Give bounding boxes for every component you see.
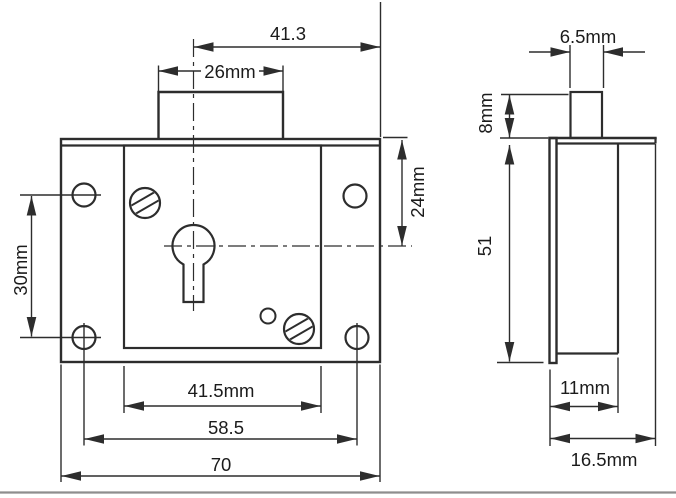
dim-label-tab-width: 26mm — [204, 61, 255, 82]
side-dimensions: 6.5mm 8mm 51 11mm 16.5mm — [474, 26, 656, 470]
front-dimensions: 41.3 26mm 24mm 30mm 41.5mm 58.5 70 — [10, 2, 428, 482]
screw-hole-top-right — [344, 185, 367, 208]
lock-plate-outline — [61, 139, 380, 362]
side-view — [550, 92, 656, 363]
front-view — [61, 39, 412, 362]
dim-label-overall-depth: 16.5mm — [571, 449, 638, 470]
dim-label-bolt-width: 6.5mm — [560, 26, 617, 47]
inner-case-outline — [124, 146, 321, 349]
dim-label-hole-pitch-vertical: 30mm — [10, 244, 31, 295]
dim-label-bolt-projection: 8mm — [475, 92, 496, 133]
face-plate — [550, 138, 557, 363]
screw-head-lower — [282, 314, 316, 344]
dim-label-center-to-edge: 41.3 — [270, 23, 306, 44]
dim-label-case-depth: 11mm — [560, 377, 610, 398]
lock-bolt — [571, 92, 603, 138]
dim-label-overall-width: 70 — [211, 454, 232, 475]
dim-label-case-width: 41.5mm — [188, 380, 255, 401]
fixing-tab — [159, 92, 284, 138]
screw-head-upper — [128, 188, 162, 218]
lock-technical-drawing: 41.3 26mm 24mm 30mm 41.5mm 58.5 70 — [0, 0, 676, 498]
dim-label-height: 51 — [474, 236, 495, 257]
dim-label-hole-pitch-horizontal: 58.5 — [208, 417, 244, 438]
drawing-canvas: 41.3 26mm 24mm 30mm 41.5mm 58.5 70 — [0, 0, 676, 498]
dim-label-top-to-center: 24mm — [407, 166, 428, 217]
pin-hole — [261, 309, 276, 324]
